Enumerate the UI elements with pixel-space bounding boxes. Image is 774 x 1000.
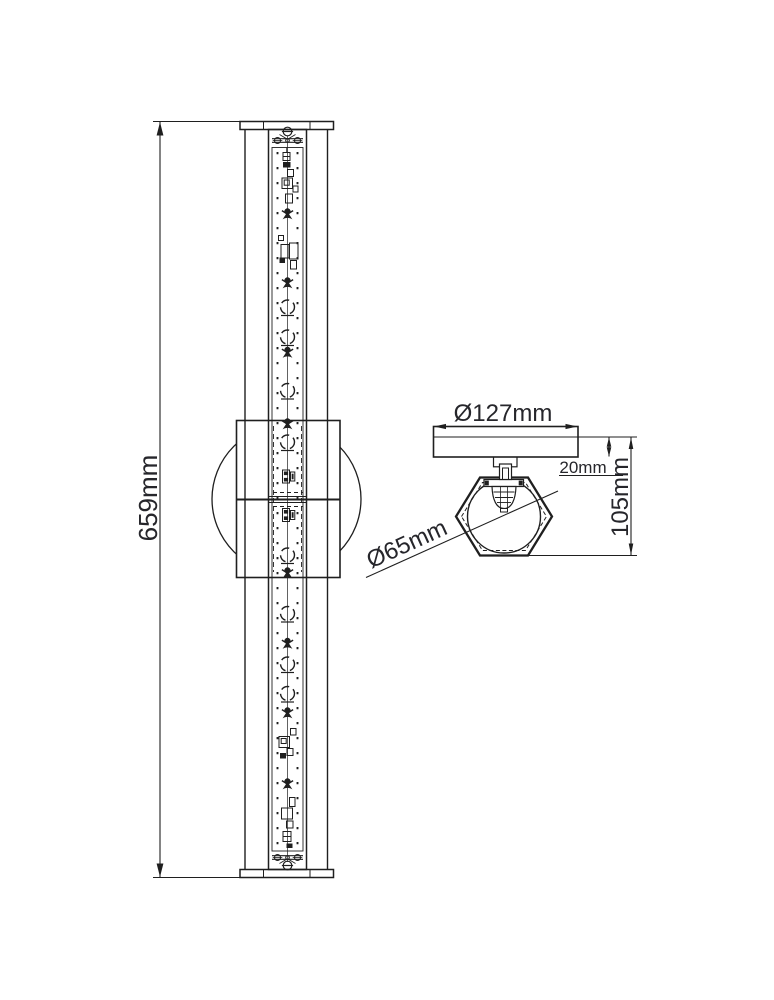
wall-plate [434, 427, 579, 458]
shade-diameter-label: Ø65mm [362, 514, 451, 574]
arrow-up-icon [629, 438, 634, 450]
technical-drawing-page: 659mm [0, 0, 774, 1000]
driver-cluster-bottom [282, 798, 296, 849]
plate-thickness-label: 20mm [559, 458, 606, 477]
mounting-stem [494, 457, 518, 480]
arrow-up-icon [157, 122, 164, 136]
front-view: 659mm [133, 122, 361, 878]
arrow-down-icon [157, 864, 164, 878]
driver-cluster-top [282, 148, 298, 204]
technical-drawing: 659mm [0, 0, 774, 1000]
bracket-cluster-upper [279, 236, 299, 270]
arrow-down-icon [607, 447, 612, 456]
front-height-dimension: 659mm [133, 122, 240, 878]
projection-dimension-label: 105mm [607, 457, 634, 537]
plate-diameter-label: Ø127mm [454, 400, 553, 427]
height-dimension-label: 659mm [133, 455, 163, 542]
top-end-cap [240, 122, 334, 130]
side-diameter-dimension: Ø127mm [434, 400, 579, 429]
bottom-end-cap [240, 870, 334, 878]
arrow-down-icon [629, 544, 634, 556]
arrow-up-icon [607, 438, 612, 447]
side-view: Ø127mm 20mm 105mm Ø65mm [362, 400, 637, 578]
